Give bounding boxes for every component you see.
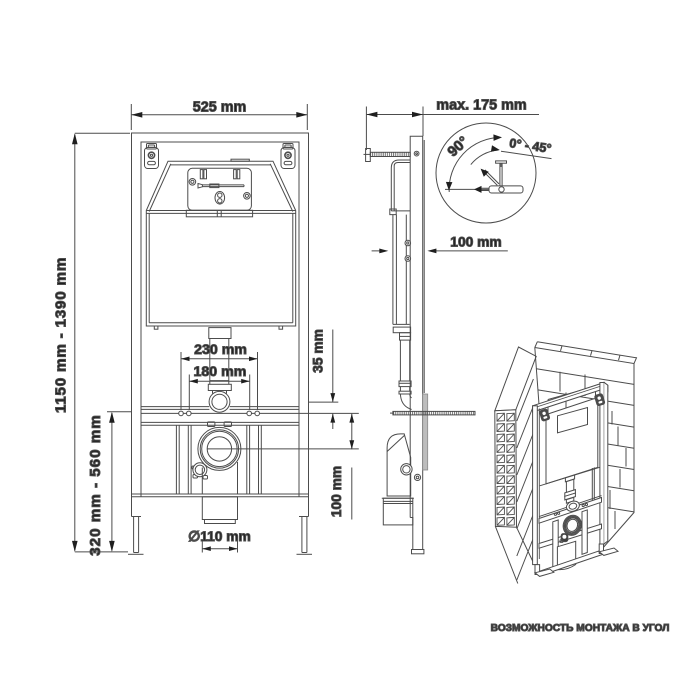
svg-text:35 mm: 35 mm: [311, 329, 326, 373]
svg-text:320 mm - 560 mm: 320 mm - 560 mm: [87, 414, 104, 556]
svg-text:1150 mm - 1390 mm: 1150 mm - 1390 mm: [53, 257, 70, 413]
svg-text:100 mm: 100 mm: [450, 235, 501, 250]
svg-text:230 mm: 230 mm: [194, 342, 247, 358]
svg-text:525 mm: 525 mm: [193, 100, 247, 116]
svg-text:∅110 mm: ∅110 mm: [188, 529, 251, 544]
svg-text:180 mm: 180 mm: [193, 364, 246, 380]
svg-text:max. 175 mm: max. 175 mm: [436, 98, 526, 114]
svg-text:ВОЗМОЖНОСТЬ МОНТАЖА В УГОЛ: ВОЗМОЖНОСТЬ МОНТАЖА В УГОЛ: [491, 623, 670, 634]
svg-text:100 mm: 100 mm: [329, 466, 344, 517]
